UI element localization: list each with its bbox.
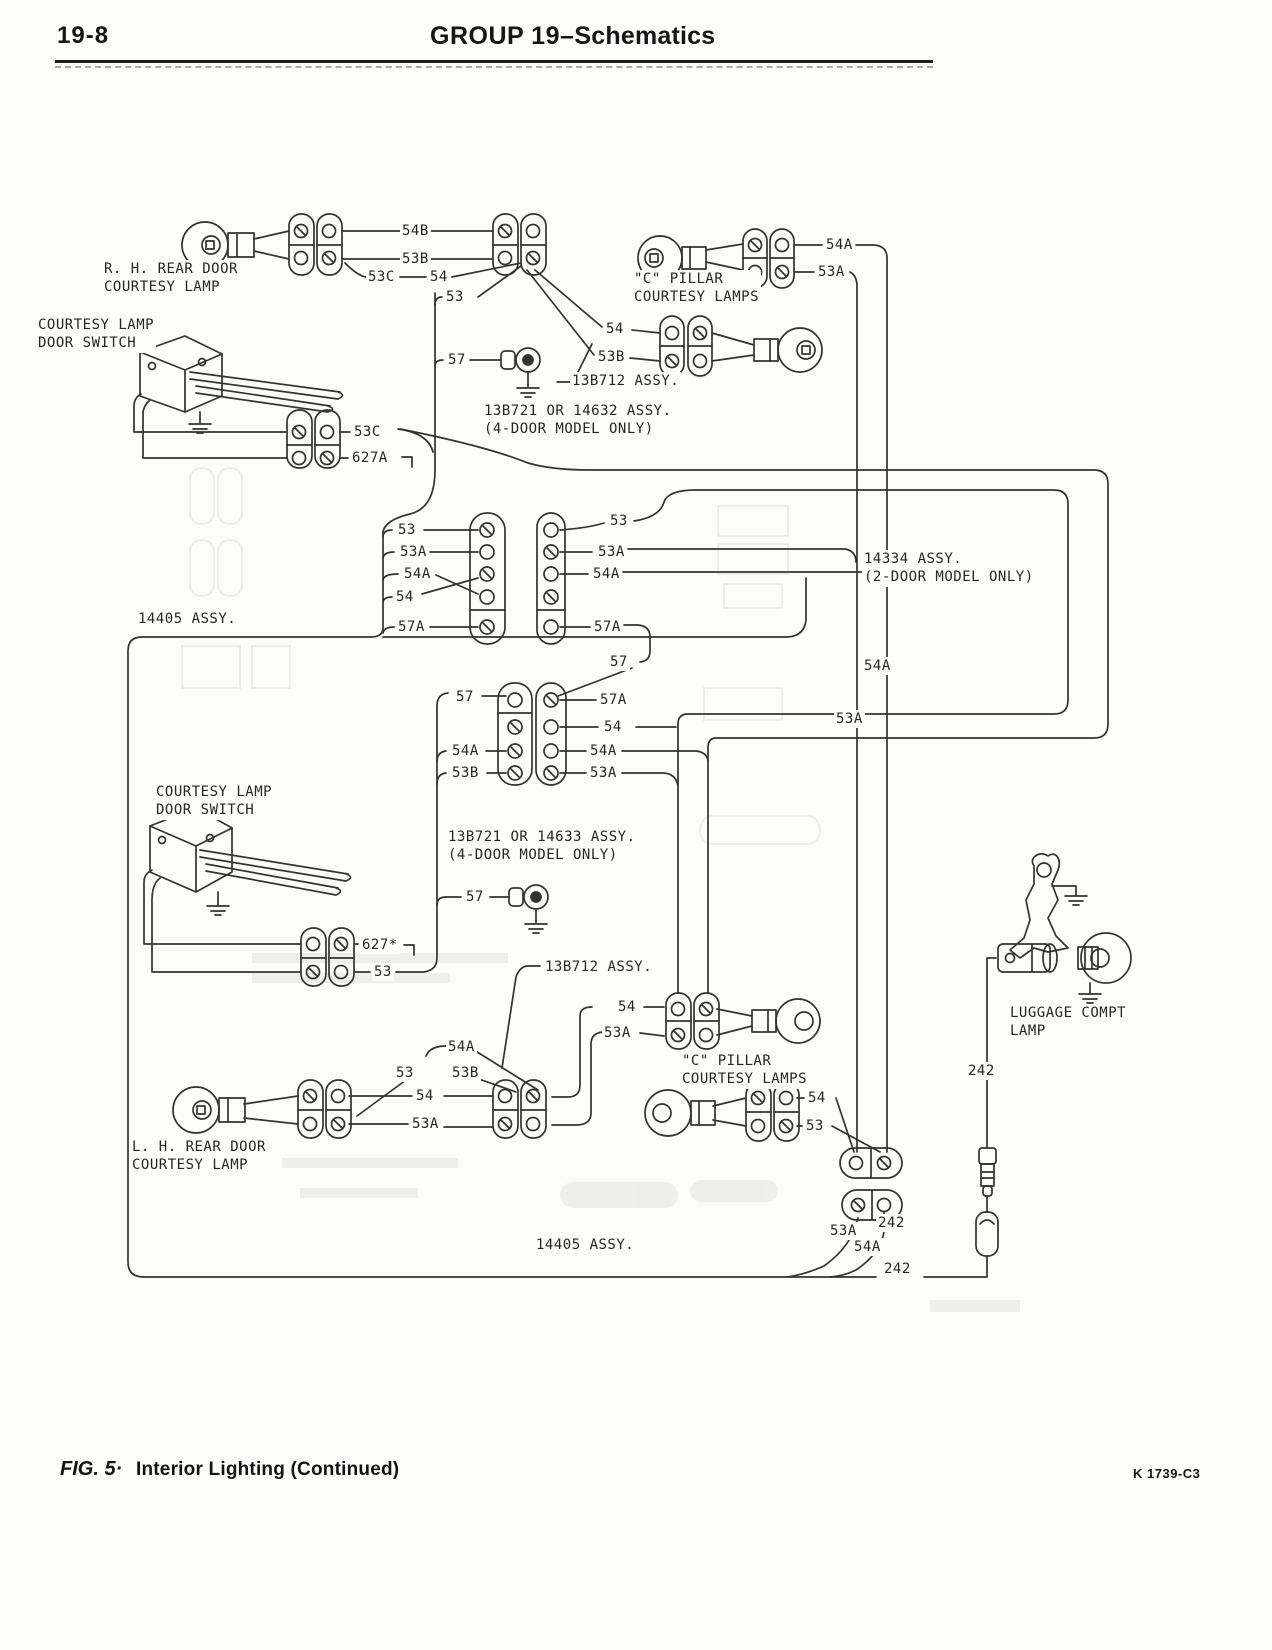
wire-54a-4: 54A (852, 1238, 883, 1256)
label-luggage-compt-lamp: LUGGAGE COMPT LAMP (1008, 1004, 1128, 1041)
assy-14405-bottom: 14405 ASSY. (534, 1236, 636, 1254)
label-c-pillar-lamps-1: "C" PILLAR COURTESY LAMPS (632, 270, 761, 307)
wire-57-g2r: 57 (608, 653, 630, 671)
assy-13b721-14632: 13B721 OR 14632 ASSY. (4-DOOR MODEL ONLY… (482, 402, 674, 439)
wire-53a-trunk: 53A (834, 710, 865, 728)
wire-57a-g1r: 57A (592, 618, 623, 636)
wire-53a-g1r: 53A (596, 543, 627, 561)
wire-53c: 53C (366, 268, 397, 286)
wire-627a: 627A (350, 449, 390, 467)
wire-53-g1l: 53 (396, 521, 418, 539)
wire-54-4: 54 (806, 1089, 828, 1107)
assy-13b712-1: 13B712 ASSY. (570, 372, 681, 390)
wire-53-3: 53 (804, 1117, 826, 1135)
wire-53a-g1l: 53A (398, 543, 429, 561)
wire-54-cpillar1: 54 (604, 320, 626, 338)
wire-54a-g2r: 54A (588, 742, 619, 760)
manual-page: 19-8 GROUP 19–Schematics (0, 0, 1272, 1650)
wire-53-g1r: 53 (608, 512, 630, 530)
wire-54a-g1r: 54A (591, 565, 622, 583)
label-c-pillar-lamps-2: "C" PILLAR COURTESY LAMPS (680, 1052, 809, 1089)
wire-53a-3: 53A (602, 1024, 633, 1042)
wire-53a-lh: 53A (410, 1115, 441, 1133)
wire-57-2: 57 (464, 888, 486, 906)
wire-54: 54 (428, 268, 450, 286)
assy-13b712-2: 13B712 ASSY. (543, 958, 654, 976)
label-lh-rear-door-courtesy-lamp: L. H. REAR DOOR COURTESY LAMP (130, 1138, 268, 1175)
wire-54a-g2l: 54A (450, 742, 481, 760)
labels-layer: R. H. REAR DOOR COURTESY LAMPCOURTESY LA… (0, 0, 1272, 1650)
wire-54-g1l: 54 (394, 588, 416, 606)
wire-57a-g1l: 57A (396, 618, 427, 636)
wire-53: 53 (444, 288, 466, 306)
wire-54-g2r: 54 (602, 718, 624, 736)
assy-14405-top: 14405 ASSY. (136, 610, 238, 628)
wire-53-lh: 53 (394, 1064, 416, 1082)
wire-242-2: 242 (876, 1214, 907, 1232)
wire-53-2: 53 (372, 963, 394, 981)
wire-57: 57 (446, 351, 468, 369)
label-rh-rear-door-courtesy-lamp: R. H. REAR DOOR COURTESY LAMP (102, 260, 240, 297)
assy-13b721-14633: 13B721 OR 14633 ASSY. (4-DOOR MODEL ONLY… (446, 828, 638, 865)
wire-57a-g2r: 57A (598, 691, 629, 709)
wire-54b: 54B (400, 222, 431, 240)
wire-242-1: 242 (966, 1062, 997, 1080)
label-courtesy-lamp-door-switch-1: COURTESY LAMP DOOR SWITCH (36, 316, 156, 353)
wire-57-g2l: 57 (454, 688, 476, 706)
wire-54a-top: 54A (824, 236, 855, 254)
wire-53b: 53B (400, 250, 431, 268)
label-courtesy-lamp-door-switch-2: COURTESY LAMP DOOR SWITCH (154, 783, 274, 820)
wire-54a-g1l: 54A (402, 565, 433, 583)
wire-53b-lh: 53B (450, 1064, 481, 1082)
assy-14334: 14334 ASSY. (2-DOOR MODEL ONLY) (862, 550, 1036, 587)
wire-53b-cpillar1: 53B (596, 348, 627, 366)
wire-54-lh: 54 (414, 1087, 436, 1105)
wire-54a-trunk: 54A (862, 657, 893, 675)
wire-53a-g2r: 53A (588, 764, 619, 782)
wire-54a-lh: 54A (446, 1038, 477, 1056)
wire-53a-top: 53A (816, 263, 847, 281)
wire-54-3: 54 (616, 998, 638, 1016)
wire-242-3: 242 (882, 1260, 913, 1278)
wire-53c-2: 53C (352, 423, 383, 441)
wire-627: 627* (360, 936, 400, 954)
wire-53b-g2l: 53B (450, 764, 481, 782)
